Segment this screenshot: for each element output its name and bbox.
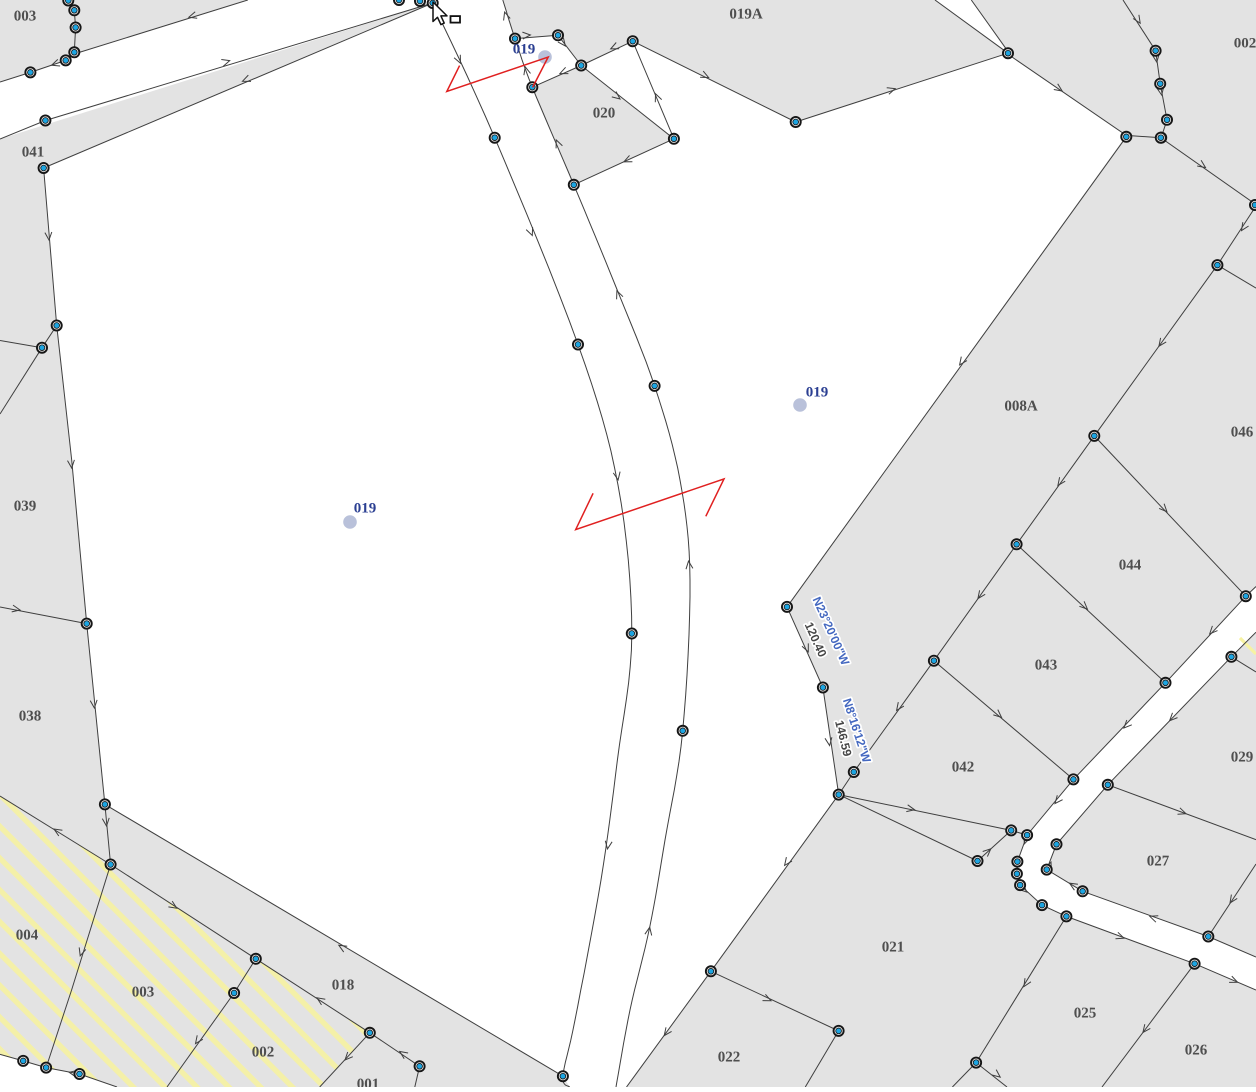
svg-text:003: 003: [14, 8, 37, 24]
svg-text:043: 043: [1035, 657, 1058, 673]
svg-text:019: 019: [513, 41, 536, 57]
svg-text:019: 019: [354, 500, 377, 516]
svg-text:003: 003: [132, 984, 155, 1000]
svg-text:029: 029: [1231, 749, 1254, 765]
svg-text:019A: 019A: [729, 6, 763, 22]
svg-text:038: 038: [19, 708, 42, 724]
svg-text:008A: 008A: [1004, 398, 1038, 414]
svg-text:004: 004: [16, 927, 39, 943]
svg-text:019: 019: [806, 384, 829, 400]
svg-text:001: 001: [357, 1076, 380, 1087]
svg-text:002: 002: [1234, 35, 1256, 51]
svg-text:046: 046: [1231, 424, 1254, 440]
svg-text:039: 039: [14, 498, 37, 514]
svg-text:044: 044: [1119, 557, 1142, 573]
svg-text:020: 020: [593, 105, 616, 121]
svg-text:018: 018: [332, 977, 355, 993]
svg-text:042: 042: [952, 759, 975, 775]
svg-text:021: 021: [882, 939, 905, 955]
svg-text:041: 041: [22, 144, 45, 160]
svg-text:002: 002: [252, 1044, 275, 1060]
svg-text:026: 026: [1185, 1042, 1208, 1058]
svg-text:022: 022: [718, 1049, 741, 1065]
svg-text:027: 027: [1147, 853, 1170, 869]
svg-text:025: 025: [1074, 1005, 1097, 1021]
